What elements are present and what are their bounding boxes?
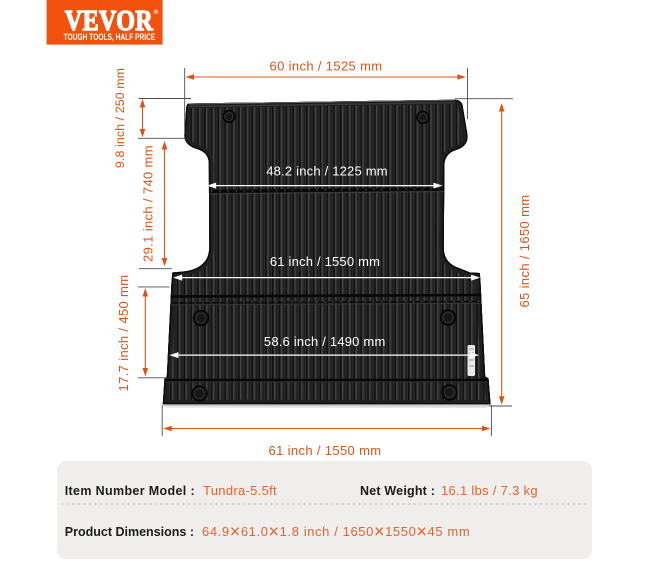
svg-text:60 inch / 1525 mm: 60 inch / 1525 mm [270, 59, 383, 74]
svg-text:61 inch / 1550 mm: 61 inch / 1550 mm [269, 443, 382, 458]
svg-text:Net Weight :: Net Weight : [360, 484, 435, 498]
svg-text:Item Number Model :: Item Number Model : [65, 484, 195, 498]
svg-text:16.1 lbs / 7.3 kg: 16.1 lbs / 7.3 kg [441, 483, 538, 498]
svg-text:®: ® [154, 8, 159, 16]
svg-text:65 inch / 1650 mm: 65 inch / 1650 mm [517, 195, 532, 308]
svg-text:64.9×61.0×1.8 inch / 1650×1550: 64.9×61.0×1.8 inch / 1650×1550×45 mm [202, 522, 470, 542]
svg-text:61 inch / 1550 mm: 61 inch / 1550 mm [270, 254, 380, 269]
svg-text:TOUGH TOOLS, HALF PRICE: TOUGH TOOLS, HALF PRICE [64, 32, 156, 42]
svg-text:17.7 inch / 450 mm: 17.7 inch / 450 mm [116, 275, 131, 392]
svg-text:Product Dimensions :: Product Dimensions : [65, 525, 194, 539]
svg-text:29.1 inch / 740 mm: 29.1 inch / 740 mm [140, 145, 155, 262]
svg-text:Tundra-5.5ft: Tundra-5.5ft [203, 483, 277, 498]
svg-text:9.8 inch / 250 mm: 9.8 inch / 250 mm [113, 68, 127, 168]
svg-text:48.2 inch / 1225 mm: 48.2 inch / 1225 mm [266, 164, 388, 179]
svg-text:58.6 inch / 1490 mm: 58.6 inch / 1490 mm [264, 334, 386, 349]
